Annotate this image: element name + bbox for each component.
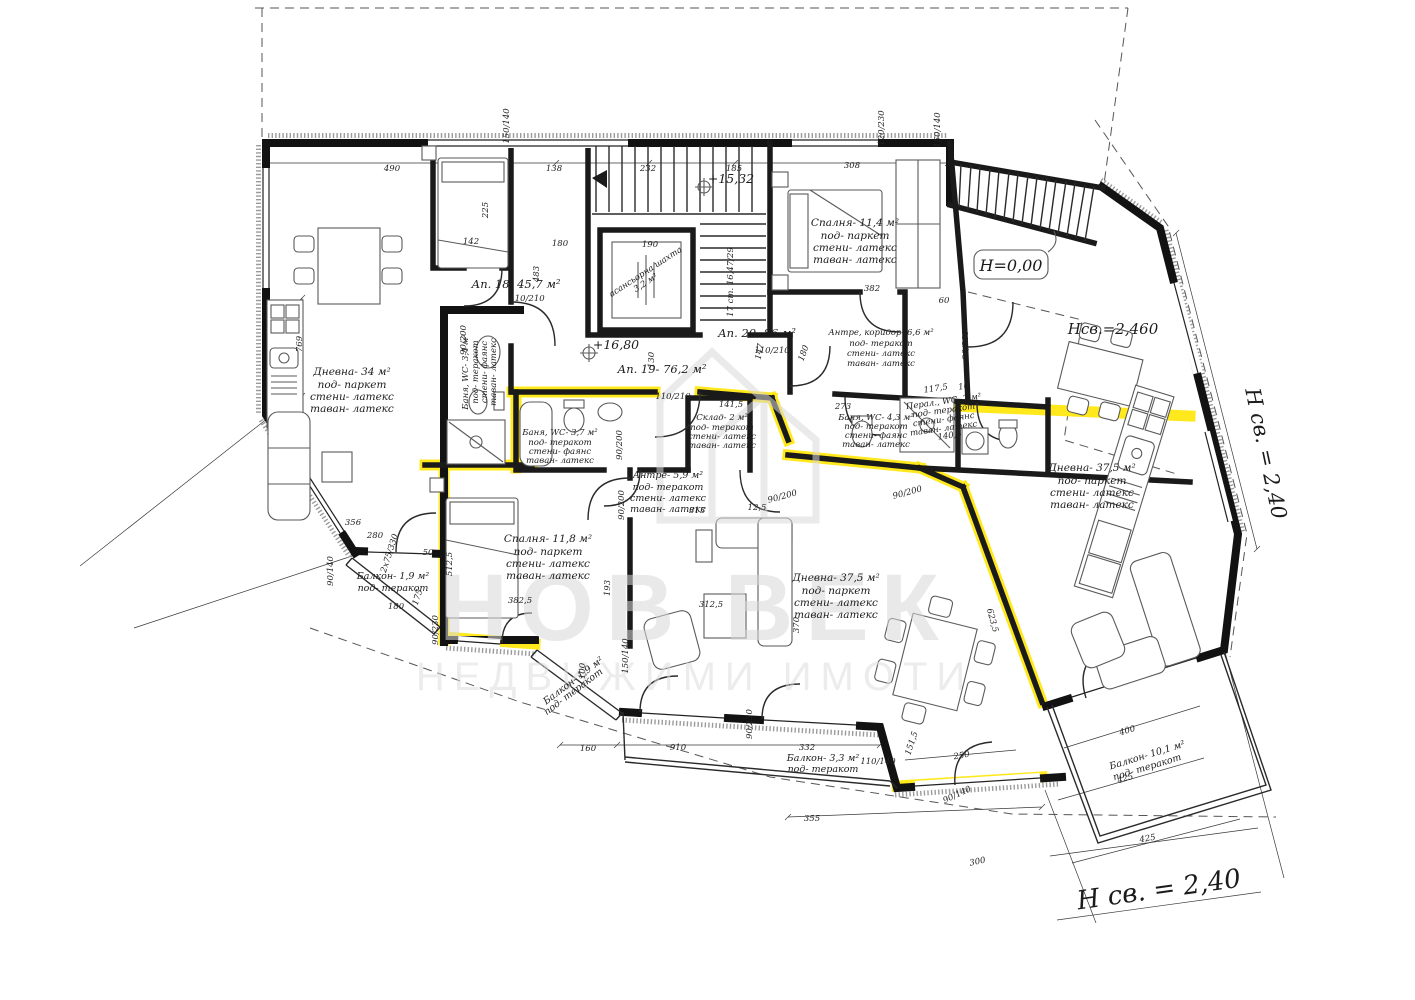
room-label: Антре- 5,9 м² — [632, 470, 703, 481]
svg-text:таван- латекс: таван- латекс — [489, 338, 499, 406]
room-label: под- теракот — [633, 482, 704, 493]
room-label: Спалня- 11,4 м² — [811, 217, 899, 229]
dim-label: 151,5 — [904, 730, 921, 756]
floor-plan: НОВ ВЕК НЕДВИЖИМИ ИМОТИ Ап. 18- 45,7 м² … — [0, 0, 1415, 1000]
dim-label: 332 — [799, 743, 815, 753]
room-label: стени- латекс — [1050, 487, 1134, 499]
room-label: Баня, WC- 3,7 м² — [521, 428, 598, 438]
dim-label: 193 — [603, 580, 613, 596]
room-label: Склад- 2 м² — [696, 413, 748, 423]
room-label: под- теракот — [788, 764, 859, 775]
wardrobe-bedroom114 — [896, 160, 940, 288]
dim-label: 623,5 — [984, 607, 1000, 633]
dim-label: 100 — [578, 662, 588, 679]
room-label: таван- латекс — [688, 441, 756, 451]
elevation-label: Н св. = 2,40 — [1240, 385, 1291, 521]
dim-label: 150/140 — [621, 638, 631, 674]
room-label: под- паркет — [514, 546, 583, 558]
room-label: под- паркет — [1058, 475, 1127, 487]
dim-label: 110/210 — [655, 392, 691, 402]
sofa-left — [268, 412, 352, 520]
room-label: стени- латекс — [310, 391, 394, 403]
kitchen-left — [267, 300, 303, 428]
room-label: таван- латекс — [526, 456, 594, 466]
dim-label: 180 — [388, 602, 405, 612]
room-label: Балкон- 1,9 м² — [356, 571, 430, 582]
dim-label: 90/230 — [431, 614, 441, 644]
room-label: стени- латекс — [506, 558, 590, 570]
room-label: под- паркет — [802, 585, 871, 597]
room-label: таван- латекс — [842, 440, 910, 450]
room-label: Антре, коридор- 6,6 м² — [827, 328, 934, 338]
dim-label: 110/210 — [509, 294, 545, 304]
dim-label: 110/210 — [754, 346, 790, 356]
dim-label: 512,5 — [445, 552, 455, 576]
dim-label: 12,5 — [748, 503, 767, 513]
room-label: таван- латекс — [310, 403, 394, 415]
room-label: под- паркет — [821, 230, 890, 242]
room-label: таван- латекс — [794, 609, 878, 621]
room-label: Спалня- 11,8 м² — [504, 533, 592, 545]
dim-label: 308 — [844, 161, 861, 171]
dim-label: 138 — [546, 164, 563, 174]
dim-label: 483 — [532, 266, 542, 283]
dim-label: 185 — [726, 164, 742, 174]
room-label: под- теракот — [849, 339, 912, 349]
dim-label: 232 — [639, 164, 656, 174]
dim-label: 190 — [642, 240, 659, 250]
stair-direction-arrow — [592, 170, 607, 188]
dim-label: 382,5 — [508, 596, 532, 606]
dim-label: 370 — [792, 616, 802, 633]
dim-label: 90/140 — [326, 555, 336, 585]
dim-label: 90/200 — [617, 489, 627, 519]
dim-label: 300 — [969, 855, 988, 868]
room-label: стени- латекс — [847, 349, 915, 359]
room-label: стени- латекс — [794, 597, 878, 609]
stairs-note: 17 ст. 16,47/29 — [726, 247, 736, 317]
dim-label: 382 — [864, 284, 880, 294]
dim-label: 273 — [834, 402, 851, 412]
watermark-subtitle: НЕДВИЖИМИ ИМОТИ — [416, 655, 974, 699]
elevation-label: Нсв.=2,460 — [1067, 320, 1159, 338]
apartment-label: Ап. 20- 86 м² — [717, 326, 796, 340]
dim-label: 90/230 — [745, 708, 755, 738]
room-label: Дневна- 37,5 м² — [791, 572, 879, 584]
dim-label: 160 — [580, 744, 597, 754]
room-label: Балкон- 3,3 м² — [786, 753, 860, 764]
room-label: таван- латекс — [506, 570, 590, 582]
dim-label: 120/230 — [877, 110, 887, 146]
dim-label: 110/140 — [860, 757, 896, 767]
dim-label: 117,5 — [923, 382, 948, 395]
dim-label: 90/200 — [459, 324, 469, 354]
dim-label: 150/140 — [502, 108, 512, 144]
dim-label: 150/140 — [933, 112, 943, 148]
elevation-label: H=0,00 — [979, 256, 1043, 275]
apartment-label: Ап. 19- 76,2 м² — [616, 362, 706, 376]
dim-label: 90/200 — [615, 429, 625, 459]
room-label: таван- латекс — [813, 254, 897, 266]
dim-label: 355 — [804, 814, 820, 824]
room-label: Дневна- 34 м² — [312, 366, 390, 378]
dim-label: 312,5 — [699, 600, 723, 610]
dim-label: 910 — [670, 743, 687, 753]
dining-table-left — [294, 228, 402, 304]
dim-label: 490 — [383, 164, 401, 174]
dim-label: 90/200 — [767, 488, 799, 506]
dim-label: 250 — [952, 750, 971, 763]
dim-label: 280 — [366, 531, 384, 541]
dim-label: 90/200 — [892, 484, 924, 502]
dim-label: 180 — [797, 343, 812, 362]
dim-label: 400 — [1117, 724, 1137, 739]
elevation-label: +16,80 — [593, 337, 639, 352]
dim-label: 10 — [958, 381, 971, 392]
room-label: Дневна- 37,5 м² — [1047, 462, 1135, 474]
dim-label: 50 — [423, 548, 434, 558]
dim-label: 90/200 — [961, 329, 971, 359]
room-label: стени- латекс — [813, 242, 897, 254]
dim-label: 142 — [463, 237, 479, 247]
room-label: таван- латекс — [847, 359, 915, 369]
dim-label: 225 — [481, 202, 491, 219]
dim-label: 130 — [647, 351, 657, 368]
room-label: стени- латекс — [630, 493, 707, 504]
dim-label: 180 — [552, 239, 569, 249]
apartment-label: Ап. 18- 45,7 м² — [470, 277, 560, 291]
dim-label: 141,5 — [719, 400, 743, 410]
room-label: таван- латекс — [1050, 499, 1134, 511]
dim-label: 356 — [345, 518, 362, 528]
dim-label: 769 — [295, 335, 305, 352]
dim-label: 313 — [689, 506, 705, 516]
room-label: под- паркет — [318, 379, 387, 391]
dim-label: 60 — [939, 296, 950, 306]
elevation-label: Н св. = 2,40 — [1074, 864, 1243, 917]
dim-label: 425 — [1138, 833, 1157, 846]
